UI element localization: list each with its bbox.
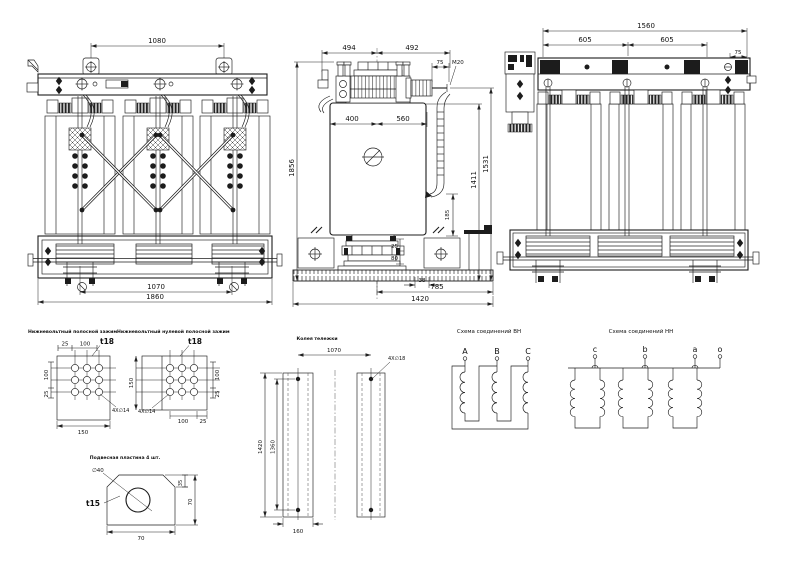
hang-plate-dim-70b: 70 bbox=[138, 536, 145, 542]
detail-clamp-lv-neutral: Нижневольтный нулевой полосной зажим t18… bbox=[117, 328, 230, 425]
schematic-hv: Схема соединений ВН A B C bbox=[452, 328, 531, 429]
dim-side-38: 38 bbox=[419, 278, 426, 284]
clamp-lv-dim-150: 150 bbox=[78, 430, 89, 436]
clamp-lv-label: Нижневольтный полосной зажим bbox=[28, 328, 117, 335]
lv-terminal-o: o bbox=[718, 345, 723, 354]
hv-terminal-a: A bbox=[462, 347, 468, 356]
lv-terminal-c: c bbox=[593, 345, 597, 354]
dim-side-400: 400 bbox=[345, 115, 358, 123]
front-view: 1080 1070 1860 bbox=[27, 37, 282, 305]
clamp-lvn-label: Нижневольтный нулевой полосной зажим bbox=[117, 328, 230, 335]
dim-side-1531: 1531 bbox=[482, 155, 490, 173]
schematic-lv: Схема соединений НН c b a o bbox=[568, 328, 723, 428]
detail-clamp-lv: Нижневольтный полосной зажим 25 100 t18 … bbox=[28, 328, 129, 436]
track-dim-1070: 1070 bbox=[327, 348, 341, 354]
dim-side-494: 494 bbox=[342, 44, 356, 52]
dim-side-1420: 1420 bbox=[411, 295, 429, 303]
dim-side-560: 560 bbox=[396, 115, 409, 123]
thread-label: M20 bbox=[452, 60, 464, 66]
clamp-lvn-dim-v100: 100 bbox=[215, 369, 221, 380]
track-holes: 4X∅18 bbox=[388, 356, 405, 362]
clamp-lv-dim-v100: 100 bbox=[44, 369, 50, 380]
hv-label: Схема соединений ВН bbox=[457, 328, 521, 335]
clamp-lvn-dim-150: 150 bbox=[129, 377, 135, 388]
dim-rear-75: 75 bbox=[735, 50, 742, 56]
drawing-canvas: 1080 1070 1860 494 492 75 bbox=[0, 0, 800, 564]
dim-side-25: 25 bbox=[391, 244, 398, 250]
lv-label: Схема соединений НН bbox=[609, 328, 674, 335]
dim-side-1411: 1411 bbox=[470, 171, 478, 189]
track-dim-160: 160 bbox=[293, 529, 304, 535]
dim-side-185: 185 bbox=[445, 209, 451, 220]
dim-rear-605b: 605 bbox=[660, 36, 673, 44]
clamp-lvn-holes: 4X∅14 bbox=[138, 409, 155, 415]
clamp-lvn-thickness: t18 bbox=[188, 337, 202, 346]
hang-plate-label: Подвесная пластина 4 шт. bbox=[90, 455, 161, 461]
dim-side-785: 785 bbox=[430, 283, 443, 291]
detail-hang-plate: Подвесная пластина 4 шт. ∅40 t15 35 70 7… bbox=[86, 455, 198, 542]
clamp-lvn-dim-v25: 25 bbox=[215, 390, 221, 397]
clamp-lv-thickness: t18 bbox=[100, 337, 114, 346]
clamp-lvn-dim-b100: 100 bbox=[178, 419, 189, 425]
hv-terminal-b: B bbox=[494, 347, 500, 356]
hang-plate-dim-70r: 70 bbox=[188, 498, 194, 505]
dim-rear-1560: 1560 bbox=[637, 22, 655, 30]
hang-plate-thickness: t15 bbox=[86, 499, 100, 508]
dim-front-rollers: 1070 bbox=[147, 283, 165, 291]
dim-side-80: 80 bbox=[391, 256, 398, 262]
detail-track: Колея тележки 1070 4X∅18 1420 1360 160 bbox=[258, 336, 405, 535]
dim-side-75: 75 bbox=[437, 60, 444, 66]
dim-side-1856: 1856 bbox=[288, 159, 296, 177]
lv-terminal-a: a bbox=[693, 345, 698, 354]
clamp-lv-dim-v25: 25 bbox=[44, 390, 50, 397]
transformer-drawing: 1080 1070 1860 494 492 75 bbox=[0, 0, 800, 564]
track-dim-1360: 1360 bbox=[271, 440, 277, 454]
dim-front-top: 1080 bbox=[148, 37, 166, 45]
hang-plate-dim-35: 35 bbox=[178, 480, 184, 486]
hang-plate-hole: ∅40 bbox=[92, 468, 104, 474]
side-view: 494 492 75 M20 400 560 bbox=[288, 44, 494, 307]
track-dim-1420: 1420 bbox=[258, 440, 264, 454]
track-label: Колея тележки bbox=[296, 336, 337, 342]
dim-side-492: 492 bbox=[405, 44, 418, 52]
rear-view: 1560 605 605 75 bbox=[497, 22, 759, 283]
dim-front-width: 1860 bbox=[146, 293, 164, 301]
dim-rear-605a: 605 bbox=[578, 36, 591, 44]
clamp-lv-holes: 4X∅14 bbox=[112, 408, 129, 414]
lv-terminal-b: b bbox=[642, 345, 647, 354]
clamp-lv-dim-25: 25 bbox=[62, 342, 69, 348]
clamp-lv-dim-100: 100 bbox=[80, 342, 91, 348]
clamp-lvn-dim-b25: 25 bbox=[200, 419, 207, 425]
hv-terminal-c: C bbox=[525, 347, 531, 356]
